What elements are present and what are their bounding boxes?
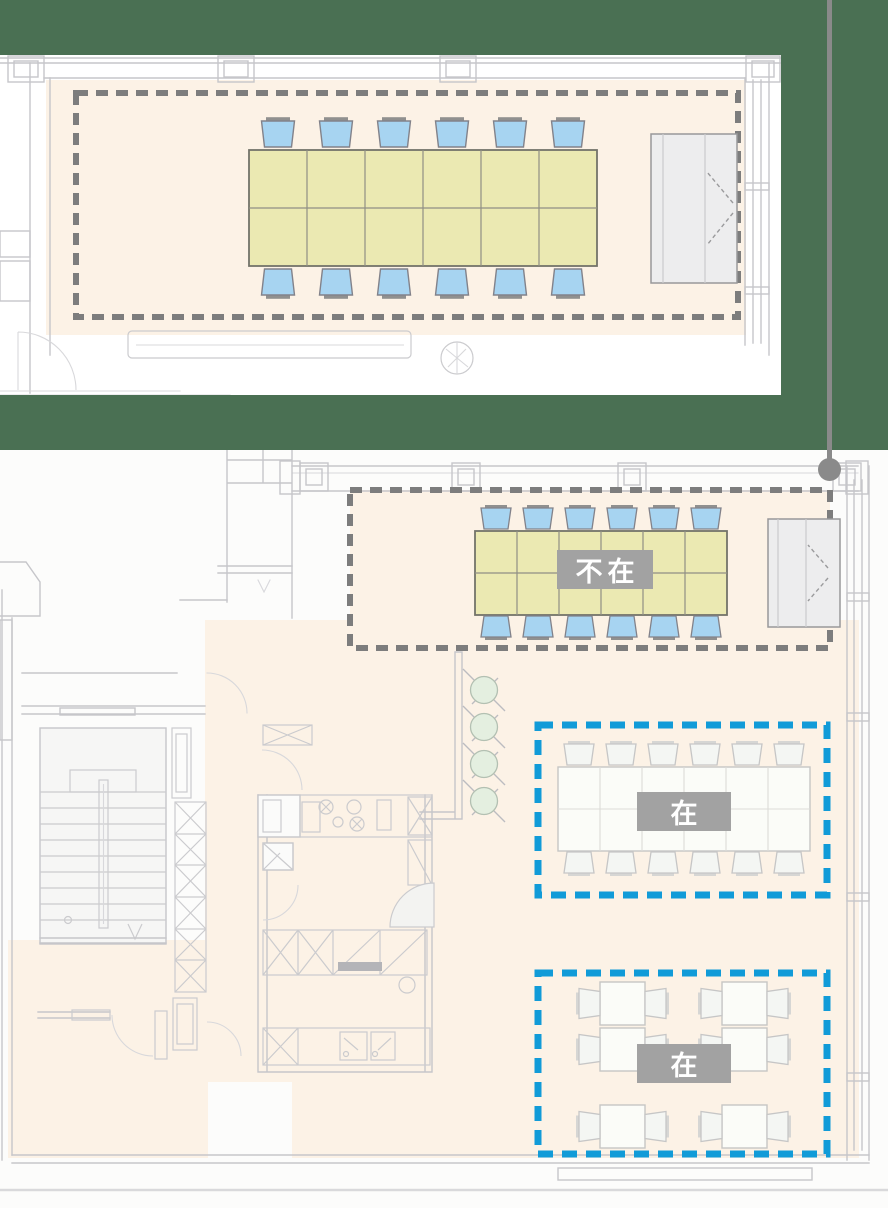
zone-meeting-room[interactable]: 不在: [350, 490, 830, 648]
plant-icon: [471, 751, 498, 778]
zoomed-room-panel: [0, 55, 781, 395]
conference-table: [249, 150, 597, 266]
zoom-connector-line: [827, 0, 832, 462]
plant-icon: [471, 714, 498, 741]
counter-handle: [338, 962, 382, 971]
zone-long-table-area[interactable]: 在: [538, 725, 827, 895]
status-badge-present[interactable]: 在: [637, 792, 731, 831]
plant-icon: [471, 677, 498, 704]
floorplan-occupancy-canvas: 不在 在 在: [0, 0, 888, 1208]
status-badge-absent[interactable]: 不在: [557, 550, 653, 589]
zone-small-tables-area[interactable]: 在: [538, 973, 827, 1155]
plant-icon: [471, 788, 498, 815]
zoomed-room-plan: [0, 55, 781, 395]
stairs: [40, 728, 166, 944]
status-badge-present[interactable]: 在: [637, 1044, 731, 1083]
zoom-connector-anchor: [818, 458, 841, 481]
storage-cabinet: [651, 134, 737, 283]
lobby-furniture: [18, 331, 473, 390]
